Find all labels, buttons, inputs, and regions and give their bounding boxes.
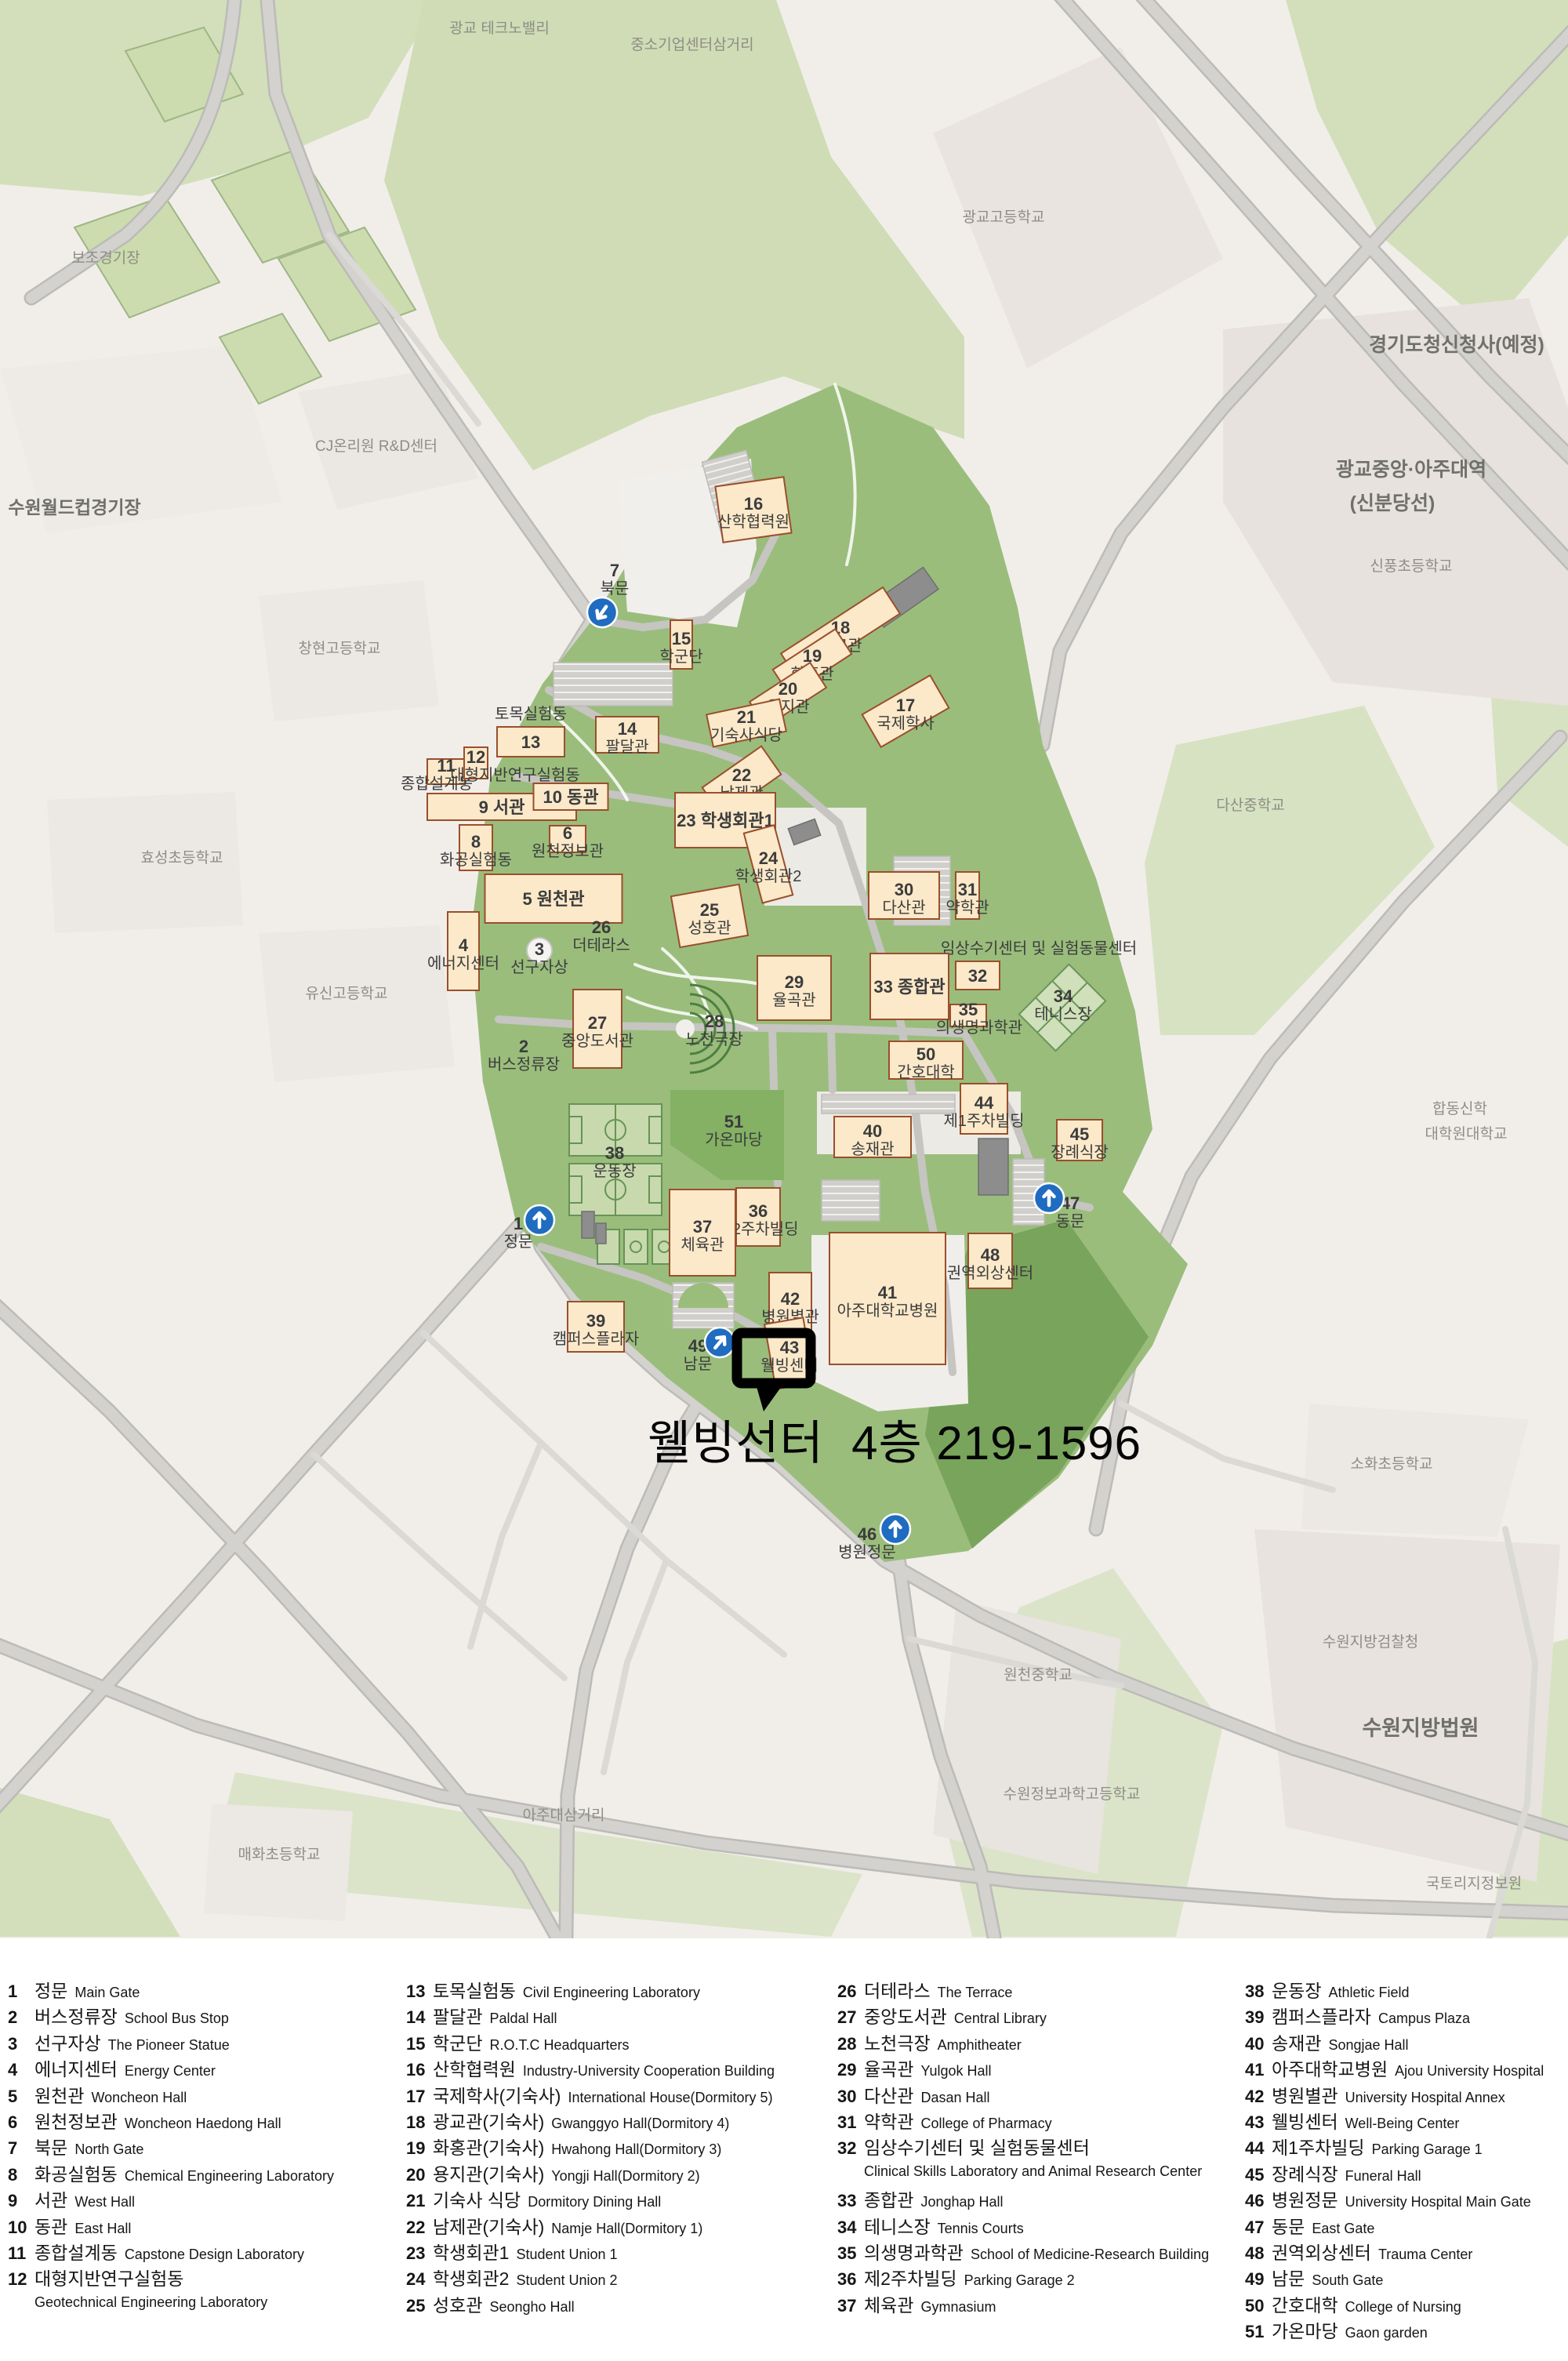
legend-item-english: Woncheon Haedong Hall (125, 2116, 281, 2132)
legend-item-1: 1정문Main Gate (8, 1976, 334, 2002)
place-label: 수원지방검찰청 (1323, 1633, 1418, 1651)
legend-item-number: 13 (406, 1981, 433, 2002)
building-33: 33 종합관 (870, 953, 949, 1019)
building-number: 42 (781, 1289, 800, 1309)
legend-item-number: 11 (8, 2243, 34, 2264)
legend-item-number: 7 (8, 2138, 34, 2159)
legend-item-english: Athletic Field (1328, 1985, 1409, 2001)
building-name: 임상수기센터 및 실험동물센터 (941, 939, 1137, 957)
building-name: 운동장 (593, 1162, 636, 1180)
legend-item-number: 36 (837, 2269, 864, 2290)
legend-item-25: 25성호관Seongho Hall (406, 2290, 775, 2316)
legend-item-korean: 송재관 (1272, 2029, 1321, 2055)
building-number: 35 (959, 1000, 978, 1019)
direction-arrow-icon (880, 1514, 910, 1544)
place-label: 수원정보과학고등학교 (1004, 1785, 1141, 1803)
legend-item-number: 20 (406, 2165, 433, 2185)
legend-item-number: 38 (1245, 1981, 1272, 2002)
legend-item-english: Paldal Hall (489, 2010, 557, 2027)
place-label: 매화초등학교 (238, 1846, 321, 1863)
building-label: 5 원천관 (522, 889, 584, 909)
building-name: 장례식장 (1051, 1143, 1109, 1161)
building-number: 38 (605, 1143, 624, 1163)
legend-item-number: 4 (8, 2060, 34, 2080)
legend-item-english: West Hall (74, 2194, 135, 2210)
building-name: 화공실험동 (440, 851, 512, 869)
legend-item-english: School of Medicine-Research Building (971, 2247, 1209, 2263)
legend-item-35: 35의생명과학관School of Medicine-Research Buil… (837, 2238, 1209, 2264)
building-name: 의생명과학관 (936, 1019, 1022, 1037)
building-number: 4 (459, 935, 469, 955)
building-name: 학생회관2 (735, 867, 802, 885)
place-label: 효성초등학교 (141, 849, 223, 866)
building-name: 동문 (1056, 1213, 1085, 1230)
legend-item-50: 50간호대학College of Nursing (1245, 2290, 1544, 2316)
legend-item-5: 5원천관Woncheon Hall (8, 2081, 334, 2107)
building-name: 간호대학 (897, 1063, 955, 1081)
legend-item-english: East Hall (74, 2221, 131, 2237)
place-label: CJ온리원 R&D센터 (315, 438, 437, 455)
legend-item-36: 36제2주차빌딩Parking Garage 2 (837, 2264, 1209, 2290)
place-label: 원천중학교 (1004, 1666, 1072, 1684)
building-name: 선구자상 (510, 958, 568, 976)
building-number: 27 (588, 1013, 607, 1033)
place-label: 다산중학교 (1216, 797, 1284, 814)
building-number: 3 (535, 939, 544, 959)
building-name: 원천정보관 (532, 842, 604, 860)
building-name: 성호관 (688, 919, 731, 937)
legend-item-korean: 웰빙센터 (1272, 2107, 1338, 2134)
legend-item-korean: 동문 (1272, 2212, 1305, 2239)
legend-item-number: 46 (1245, 2191, 1272, 2211)
legend-item-korean: 산학협력원 (433, 2054, 516, 2081)
legend-item-korean: 학생회관1 (433, 2238, 509, 2265)
legend-item-english: School Bus Stop (125, 2010, 229, 2027)
building-name: 중앙도서관 (561, 1032, 633, 1050)
building-number: 21 (737, 707, 756, 727)
legend-item-31: 31약학관College of Pharmacy (837, 2107, 1209, 2133)
legend-column-3: 26더테라스The Terrace27중앙도서관Central Library2… (837, 1976, 1209, 2316)
legend-item-19: 19화홍관(기숙사)Hwahong Hall(Dormitory 3) (406, 2133, 775, 2159)
legend-item-number: 10 (8, 2218, 34, 2238)
legend-item-english: Amphitheater (938, 2037, 1022, 2054)
building-name: 율곡관 (772, 991, 815, 1009)
legend-item-korean: 종합관 (864, 2185, 913, 2212)
legend-item-korean: 토목실험동 (433, 1976, 516, 2003)
legend-item-number: 1 (8, 1981, 34, 2002)
legend-item-45: 45장례식장Funeral Hall (1245, 2159, 1544, 2185)
legend-item-number: 8 (8, 2165, 34, 2185)
building-number: 41 (878, 1283, 897, 1302)
legend-item-51: 51가온마당Gaon garden (1245, 2316, 1544, 2342)
building-number: 8 (471, 832, 481, 852)
legend-item-22: 22남제관(기숙사)Namje Hall(Dormitory 1) (406, 2212, 775, 2238)
legend-item-number: 15 (406, 2034, 433, 2054)
place-label: 유신고등학교 (306, 985, 388, 1002)
legend-item-korean: 체육관 (864, 2290, 913, 2317)
building-number: 25 (700, 900, 719, 920)
legend-item-korean: 기숙사 식당 (433, 2185, 521, 2212)
legend-item-13: 13토목실험동Civil Engineering Laboratory (406, 1976, 775, 2002)
place-label: 아주대삼거리 (523, 1807, 605, 1824)
building-25: 25성호관 (671, 884, 748, 947)
place-label: 광교고등학교 (963, 209, 1045, 226)
legend-item-34: 34테니스장Tennis Courts (837, 2212, 1209, 2238)
legend-item-38: 38운동장Athletic Field (1245, 1976, 1544, 2002)
legend-item-korean: 정문 (34, 1976, 67, 2003)
legend-item-number: 19 (406, 2138, 433, 2159)
annotation-text: 웰빙선터 4층 219-1596 (648, 1405, 1142, 1473)
legend-item-korean: 에너지센터 (34, 2054, 118, 2081)
building-label: 23 학생회관1 (677, 811, 774, 830)
legend-item-korean: 병원별관 (1272, 2081, 1338, 2108)
building-name: 북문 (601, 580, 630, 598)
campus-map: 광교 테크노밸리중소기업센터삼거리광교고등학교경기도청신청사(예정)광교중앙·아… (0, 0, 1568, 1938)
legend-item-10: 10동관East Hall (8, 2212, 334, 2238)
legend-item-30: 30다산관Dasan Hall (837, 2081, 1209, 2107)
legend-item-20: 20용지관(기숙사)Yongji Hall(Dormitory 2) (406, 2159, 775, 2185)
building-name: 다산관 (882, 899, 925, 917)
building-name: 병원정문 (838, 1543, 896, 1561)
place-label: 신풍초등학교 (1370, 558, 1453, 575)
legend-item-number: 35 (837, 2243, 864, 2264)
building-number: 32 (968, 966, 987, 986)
legend-item-korean: 남제관(기숙사) (433, 2212, 544, 2239)
legend-item-46: 46병원정문University Hospital Main Gate (1245, 2185, 1544, 2211)
legend-column-4: 38운동장Athletic Field39캠퍼스플라자Campus Plaza4… (1245, 1976, 1544, 2342)
legend-item-english: Central Library (954, 2010, 1047, 2027)
building-label: 10 동관 (543, 787, 598, 807)
legend-item-2: 2버스정류장School Bus Stop (8, 2002, 334, 2028)
legend-item-english: Parking Garage 1 (1372, 2141, 1483, 2158)
legend-item-korean: 화홍관(기숙사) (433, 2133, 544, 2159)
building-name: 대형지반연구실험동 (450, 766, 580, 784)
building-10: 10 동관 (534, 783, 608, 810)
building-name: 산학협력원 (717, 513, 789, 531)
legend-item-korean: 용지관(기숙사) (433, 2159, 544, 2186)
building-name: 남문 (684, 1355, 713, 1373)
legend-item-english-line2: Clinical Skills Laboratory and Animal Re… (864, 2159, 1209, 2185)
legend-item-number: 34 (837, 2218, 864, 2238)
legend-item-3: 3선구자상The Pioneer Statue (8, 2029, 334, 2054)
building-label: 33 종합관 (873, 977, 945, 997)
legend-item-english: Industry-University Cooperation Building (523, 2063, 775, 2079)
legend-item-number: 29 (837, 2060, 864, 2080)
place-label: 합동신학 (1432, 1100, 1487, 1117)
legend-item-39: 39캠퍼스플라자Campus Plaza (1245, 2002, 1544, 2028)
legend-item-english: Hwahong Hall(Dormitory 3) (551, 2141, 721, 2158)
building-number: 28 (705, 1012, 724, 1031)
legend-item-english: Energy Center (125, 2063, 216, 2079)
campus-map-canvas: 광교 테크노밸리중소기업센터삼거리광교고등학교경기도청신청사(예정)광교중앙·아… (0, 0, 1568, 1938)
building-45: 45장례식장 (1051, 1120, 1109, 1161)
legend-item-korean: 팔달관 (433, 2002, 482, 2029)
building-name: 체육관 (681, 1236, 724, 1254)
building-number: 44 (975, 1093, 994, 1113)
legend-item-44: 44제1주차빌딩Parking Garage 1 (1245, 2133, 1544, 2159)
building-number: 12 (466, 747, 485, 767)
direction-arrow-icon (524, 1205, 554, 1235)
legend-item-korean: 캠퍼스플라자 (1272, 2002, 1371, 2029)
legend-item-number: 12 (8, 2269, 34, 2290)
legend-item-korean: 광교관(기숙사) (433, 2107, 544, 2134)
place-label: 광교 테크노밸리 (449, 20, 550, 37)
legend-item-41: 41아주대학교병원Ajou University Hospital (1245, 2054, 1544, 2080)
building-number: 30 (895, 880, 913, 899)
building-name: 정문 (504, 1233, 533, 1251)
legend-item-english: Funeral Hall (1345, 2168, 1421, 2185)
building-name: 국제학사 (877, 714, 935, 732)
legend-item-english: Dormitory Dining Hall (528, 2194, 661, 2210)
legend-item-number: 45 (1245, 2165, 1272, 2185)
legend-item-english: University Hospital Main Gate (1345, 2194, 1531, 2210)
legend-item-korean: 간호대학 (1272, 2290, 1338, 2317)
building-label: 9 서관 (479, 797, 525, 817)
legend-item-number: 32 (837, 2138, 864, 2159)
legend-item-28: 28노천극장Amphitheater (837, 2029, 1209, 2054)
legend-item-english-line2: Geotechnical Engineering Laboratory (34, 2290, 334, 2316)
place-label: 대학원대학교 (1425, 1125, 1508, 1142)
legend-item-english: R.O.T.C Headquarters (489, 2037, 629, 2054)
legend-item-11: 11종합설계동Capstone Design Laboratory (8, 2238, 334, 2264)
legend-item-korean: 운동장 (1272, 1976, 1321, 2003)
legend-item-english: Songjae Hall (1328, 2037, 1408, 2054)
legend-column-2: 13토목실험동Civil Engineering Laboratory14팔달관… (406, 1976, 775, 2316)
legend-item-number: 24 (406, 2269, 433, 2290)
legend-item-korean: 국제학사(기숙사) (433, 2081, 561, 2108)
legend-item-korean: 대형지반연구실험동 (34, 2264, 183, 2290)
legend-item-english: Gaon garden (1345, 2325, 1428, 2341)
legend-item-number: 48 (1245, 2243, 1272, 2264)
legend-item-32: 32임상수기센터 및 실험동물센터 (837, 2133, 1209, 2159)
legend-item-english: Chemical Engineering Laboratory (125, 2168, 334, 2185)
legend-item-number: 23 (406, 2243, 433, 2264)
legend-item-number: 22 (406, 2218, 433, 2238)
building-number: 45 (1070, 1124, 1089, 1144)
building-name: 팔달관 (605, 738, 648, 756)
legend-item-english: Campus Plaza (1378, 2010, 1470, 2027)
legend-item-number: 51 (1245, 2322, 1272, 2342)
legend-item-korean: 학생회관2 (433, 2264, 509, 2290)
legend-item-english: Yongji Hall(Dormitory 2) (551, 2168, 699, 2185)
legend-item-english: Student Union 2 (516, 2272, 617, 2289)
legend-item-number: 42 (1245, 2087, 1272, 2107)
building-name: 노천극장 (685, 1030, 743, 1048)
place-label: 광교중앙·아주대역 (1336, 459, 1486, 481)
building-5: 5 원천관 (485, 874, 622, 923)
legend-item-korean: 성호관 (433, 2290, 482, 2317)
legend-item-8: 8화공실험동Chemical Engineering Laboratory (8, 2159, 334, 2185)
legend-item-number: 37 (837, 2296, 864, 2316)
building-number: 39 (586, 1311, 605, 1331)
building-number: 6 (563, 823, 572, 843)
legend-item-number: 18 (406, 2112, 433, 2133)
legend-item-48: 48권역외상센터Trauma Center (1245, 2238, 1544, 2264)
legend-item-korean: 장례식장 (1272, 2159, 1338, 2186)
legend-item-number: 21 (406, 2191, 433, 2211)
building-number: 51 (724, 1112, 743, 1131)
building-name: 학군단 (659, 648, 702, 666)
legend-item-number: 28 (837, 2034, 864, 2054)
legend-item-english: Ajou University Hospital (1395, 2063, 1544, 2079)
legend-item-number: 50 (1245, 2296, 1272, 2316)
legend-item-korean: 다산관 (864, 2081, 913, 2108)
legend-item-korean: 학군단 (433, 2029, 482, 2055)
legend-item-korean: 북문 (34, 2133, 67, 2159)
legend-item-33: 33종합관Jonghap Hall (837, 2185, 1209, 2211)
place-label: 창현고등학교 (299, 640, 381, 657)
building-13: 토목실험동13 (495, 705, 567, 757)
building-number: 43 (780, 1338, 799, 1357)
building-number: 20 (779, 679, 797, 699)
legend-item-number: 3 (8, 2034, 34, 2054)
legend-item-english: Gymnasium (920, 2299, 996, 2316)
legend-item-english: South Gate (1312, 2272, 1383, 2289)
legend-item-korean: 가온마당 (1272, 2316, 1338, 2343)
legend: 1정문Main Gate2버스정류장School Bus Stop3선구자상Th… (0, 1976, 1568, 2361)
place-label: 경기도청신청사(예정) (1369, 334, 1544, 356)
legend-item-korean: 원천정보관 (34, 2107, 118, 2134)
building-number: 36 (749, 1201, 768, 1221)
legend-item-number: 39 (1245, 2007, 1272, 2028)
legend-column-1: 1정문Main Gate2버스정류장School Bus Stop3선구자상Th… (8, 1976, 334, 2316)
legend-item-korean: 임상수기센터 및 실험동물센터 (864, 2133, 1090, 2159)
building-number: 40 (863, 1121, 882, 1141)
building-number: 48 (981, 1245, 1000, 1265)
legend-item-number: 30 (837, 2087, 864, 2107)
legend-item-english: Main Gate (74, 1985, 140, 2001)
legend-item-42: 42병원별관University Hospital Annex (1245, 2081, 1544, 2107)
building-name: 송재관 (851, 1140, 894, 1158)
building-name: 캠퍼스플라자 (553, 1330, 639, 1348)
building-number: 22 (732, 765, 751, 785)
building-name: 약학관 (946, 899, 989, 917)
building-name: 테니스장 (1034, 1005, 1092, 1023)
building-name: 버스정류장 (488, 1055, 560, 1073)
building-name: 제1주차빌딩 (943, 1112, 1024, 1130)
legend-item-43: 43웰빙센터Well-Being Center (1245, 2107, 1544, 2133)
legend-item-korean: 동관 (34, 2212, 67, 2239)
legend-item-number: 16 (406, 2060, 433, 2080)
legend-item-english: Jonghap Hall (920, 2194, 1003, 2210)
building-number: 26 (592, 917, 611, 937)
building-number: 1 (514, 1214, 523, 1233)
legend-item-korean: 화공실험동 (34, 2159, 118, 2186)
legend-item-21: 21기숙사 식당Dormitory Dining Hall (406, 2185, 775, 2211)
legend-item-49: 49남문South Gate (1245, 2264, 1544, 2290)
legend-item-korean: 종합설계동 (34, 2238, 118, 2265)
legend-item-english: Well-Being Center (1345, 2116, 1460, 2132)
building-number: 31 (958, 880, 977, 899)
legend-item-english: Gwanggyo Hall(Dormitory 4) (551, 2116, 729, 2132)
legend-item-english: University Hospital Annex (1345, 2090, 1505, 2106)
building-name: 더테라스 (572, 936, 630, 954)
legend-item-english: Tennis Courts (938, 2221, 1024, 2237)
legend-item-english: Civil Engineering Laboratory (523, 1985, 700, 2001)
legend-item-number: 43 (1245, 2112, 1272, 2133)
place-label: 수원지방법원 (1362, 1716, 1479, 1740)
legend-item-number: 2 (8, 2007, 34, 2028)
place-label: 수원월드컵경기장 (8, 497, 140, 518)
legend-item-29: 29율곡관Yulgok Hall (837, 2054, 1209, 2080)
legend-item-korean: 선구자상 (34, 2029, 101, 2055)
legend-item-40: 40송재관Songjae Hall (1245, 2029, 1544, 2054)
legend-item-18: 18광교관(기숙사)Gwanggyo Hall(Dormitory 4) (406, 2107, 775, 2133)
legend-item-korean: 중앙도서관 (864, 2002, 947, 2029)
legend-item-number: 9 (8, 2191, 34, 2211)
legend-item-korean: 버스정류장 (34, 2002, 118, 2029)
legend-item-number: 40 (1245, 2034, 1272, 2054)
building-number: 16 (744, 494, 763, 514)
legend-item-english: Trauma Center (1378, 2247, 1472, 2263)
building-number: 50 (916, 1044, 935, 1064)
legend-item-korean: 권역외상센터 (1272, 2238, 1371, 2265)
legend-item-english: The Pioneer Statue (108, 2037, 230, 2054)
legend-item-15: 15학군단R.O.T.C Headquarters (406, 2029, 775, 2054)
legend-item-number: 47 (1245, 2218, 1272, 2238)
legend-item-korean: 율곡관 (864, 2054, 913, 2081)
building-16: 16산학협력원 (715, 477, 791, 543)
building-number: 34 (1054, 986, 1073, 1006)
building-name: 토목실험동 (495, 705, 567, 723)
legend-item-number: 33 (837, 2191, 864, 2211)
legend-item-english: Yulgok Hall (920, 2063, 991, 2079)
legend-item-37: 37체육관Gymnasium (837, 2290, 1209, 2316)
legend-item-number: 41 (1245, 2060, 1272, 2080)
place-label: (신분당선) (1350, 492, 1436, 514)
building-number: 46 (858, 1524, 877, 1544)
legend-item-number: 31 (837, 2112, 864, 2133)
legend-item-number: 26 (837, 1981, 864, 2002)
legend-item-number: 14 (406, 2007, 433, 2028)
place-label: 소화초등학교 (1351, 1455, 1433, 1473)
legend-item-english: Student Union 1 (516, 2247, 617, 2263)
legend-item-korean: 노천극장 (864, 2029, 931, 2055)
legend-item-korean: 테니스장 (864, 2212, 931, 2239)
legend-item-number: 44 (1245, 2138, 1272, 2159)
legend-item-number: 27 (837, 2007, 864, 2028)
legend-item-english: Woncheon Hall (91, 2090, 187, 2106)
building-name: 기숙사식당 (710, 726, 782, 744)
building-number: 37 (693, 1217, 712, 1237)
building-41: 41아주대학교병원 (829, 1233, 946, 1364)
legend-item-26: 26더테라스The Terrace (837, 1976, 1209, 2002)
legend-item-12: 12대형지반연구실험동 (8, 2264, 334, 2290)
legend-item-english: College of Pharmacy (920, 2116, 1051, 2132)
building-number: 24 (759, 848, 779, 868)
building-name: 에너지센터 (427, 954, 499, 972)
legend-item-number: 49 (1245, 2269, 1272, 2290)
building-number: 14 (618, 719, 637, 739)
building-number: 15 (672, 629, 691, 648)
building-name: 권역외상센터 (947, 1264, 1033, 1282)
legend-item-english: Seongho Hall (489, 2299, 574, 2316)
legend-item-english: College of Nursing (1345, 2299, 1461, 2316)
building-50: 50간호대학 (889, 1041, 963, 1081)
place-label: 보조경기장 (71, 249, 140, 267)
building-number: 13 (521, 732, 540, 752)
legend-item-english: North Gate (74, 2141, 143, 2158)
legend-item-english: Parking Garage 2 (964, 2272, 1075, 2289)
legend-item-korean: 병원정문 (1272, 2185, 1338, 2212)
building-30: 30다산관 (869, 872, 939, 919)
legend-item-english: The Terrace (938, 1985, 1013, 2001)
legend-item-korean: 약학관 (864, 2107, 913, 2134)
legend-item-korean: 서관 (34, 2185, 67, 2212)
legend-item-23: 23학생회관1Student Union 1 (406, 2238, 775, 2264)
legend-item-korean: 제2주차빌딩 (864, 2264, 957, 2290)
building-number: 29 (785, 972, 804, 992)
